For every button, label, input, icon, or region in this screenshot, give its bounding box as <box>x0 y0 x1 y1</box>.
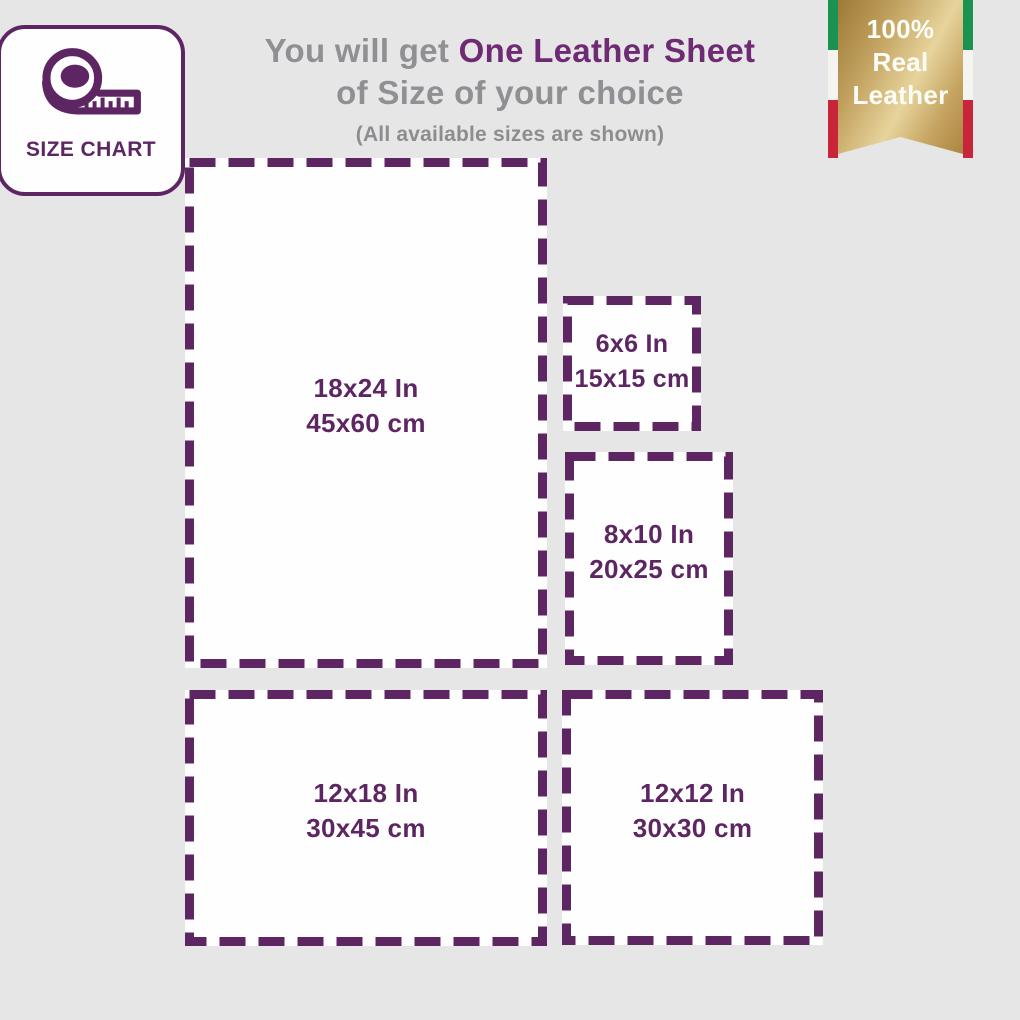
flag-red <box>963 100 973 158</box>
size-inches: 6x6 In <box>596 327 669 362</box>
flag-white <box>828 50 838 100</box>
size-box-12x12: 12x12 In 30x30 cm <box>562 690 823 945</box>
size-box-18x24: 18x24 In 45x60 cm <box>185 158 547 668</box>
size-cm: 30x45 cm <box>306 811 426 846</box>
real-leather-ribbon: 100% Real Leather <box>828 0 973 165</box>
size-label-6x6: 6x6 In 15x15 cm <box>563 294 701 429</box>
size-box-8x10: 8x10 In 20x25 cm <box>565 452 733 665</box>
flag-red <box>828 100 838 158</box>
title-line-2: of Size of your choice <box>150 72 870 114</box>
size-inches: 18x24 In <box>313 371 418 406</box>
size-label-18x24: 18x24 In 45x60 cm <box>185 151 547 661</box>
gold-banner: 100% Real Leather <box>838 0 963 154</box>
title-prefix: You will get <box>265 32 459 69</box>
page-title: You will get One Leather Sheet of Size o… <box>150 30 870 147</box>
size-cm: 45x60 cm <box>306 406 426 441</box>
flag-white <box>963 50 973 100</box>
size-label-12x12: 12x12 In 30x30 cm <box>562 683 823 938</box>
ribbon-line-1: 100% <box>838 13 963 46</box>
italian-flag-strip-right <box>963 0 973 158</box>
size-box-6x6: 6x6 In 15x15 cm <box>563 296 701 431</box>
size-label-8x10: 8x10 In 20x25 cm <box>565 445 733 658</box>
size-cm: 20x25 cm <box>589 552 709 587</box>
italian-flag-strip-left <box>828 0 838 158</box>
title-highlight: One Leather Sheet <box>459 32 756 69</box>
title-note: (All available sizes are shown) <box>150 123 870 147</box>
size-chart-label: SIZE CHART <box>26 138 156 162</box>
size-chart-badge: SIZE CHART <box>0 25 185 196</box>
size-inches: 12x12 In <box>640 776 745 811</box>
flag-green <box>963 0 973 50</box>
size-inches: 12x18 In <box>313 776 418 811</box>
title-line-1: You will get One Leather Sheet <box>150 30 870 72</box>
size-cm: 30x30 cm <box>633 811 753 846</box>
size-label-12x18: 12x18 In 30x45 cm <box>185 683 547 939</box>
tape-measure-icon <box>32 45 150 132</box>
flag-green <box>828 0 838 50</box>
ribbon-line-3: Leather <box>838 79 963 112</box>
size-cm: 15x15 cm <box>575 362 690 397</box>
size-box-12x18: 12x18 In 30x45 cm <box>185 690 547 946</box>
ribbon-line-2: Real <box>838 46 963 79</box>
size-inches: 8x10 In <box>604 517 694 552</box>
